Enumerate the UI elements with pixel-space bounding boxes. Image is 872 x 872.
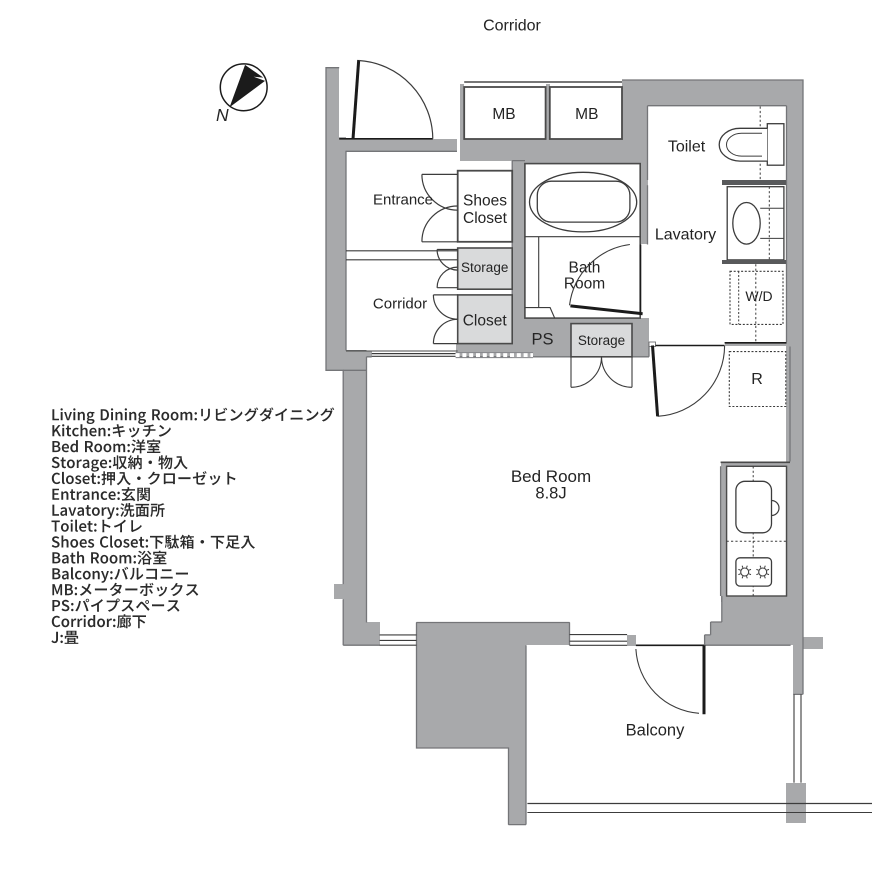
svg-text:MB: MB bbox=[575, 106, 598, 123]
svg-text:Toilet: Toilet bbox=[668, 139, 706, 156]
svg-text:Balcony: Balcony bbox=[626, 722, 685, 740]
svg-text:R: R bbox=[751, 371, 763, 388]
svg-text:8.8J: 8.8J bbox=[535, 485, 566, 503]
svg-text:Storage: Storage bbox=[578, 333, 625, 348]
svg-text:Entrance: Entrance bbox=[373, 192, 433, 209]
svg-text:Corridor: Corridor bbox=[483, 18, 541, 35]
svg-text:W/D: W/D bbox=[745, 288, 772, 304]
svg-text:Bath: Bath bbox=[569, 260, 601, 277]
svg-text:Room: Room bbox=[564, 276, 605, 293]
svg-text:Bed Room: Bed Room bbox=[511, 467, 591, 486]
svg-text:N: N bbox=[216, 105, 229, 125]
svg-text:Closet: Closet bbox=[463, 313, 508, 330]
svg-text:Storage: Storage bbox=[461, 260, 508, 275]
svg-text:Closet: Closet bbox=[463, 210, 508, 227]
svg-text:Corridor: Corridor bbox=[373, 296, 427, 313]
svg-text:Shoes: Shoes bbox=[463, 193, 507, 210]
svg-text:PS: PS bbox=[531, 331, 553, 349]
svg-text:Lavatory: Lavatory bbox=[655, 227, 716, 244]
svg-text:MB: MB bbox=[492, 106, 515, 123]
